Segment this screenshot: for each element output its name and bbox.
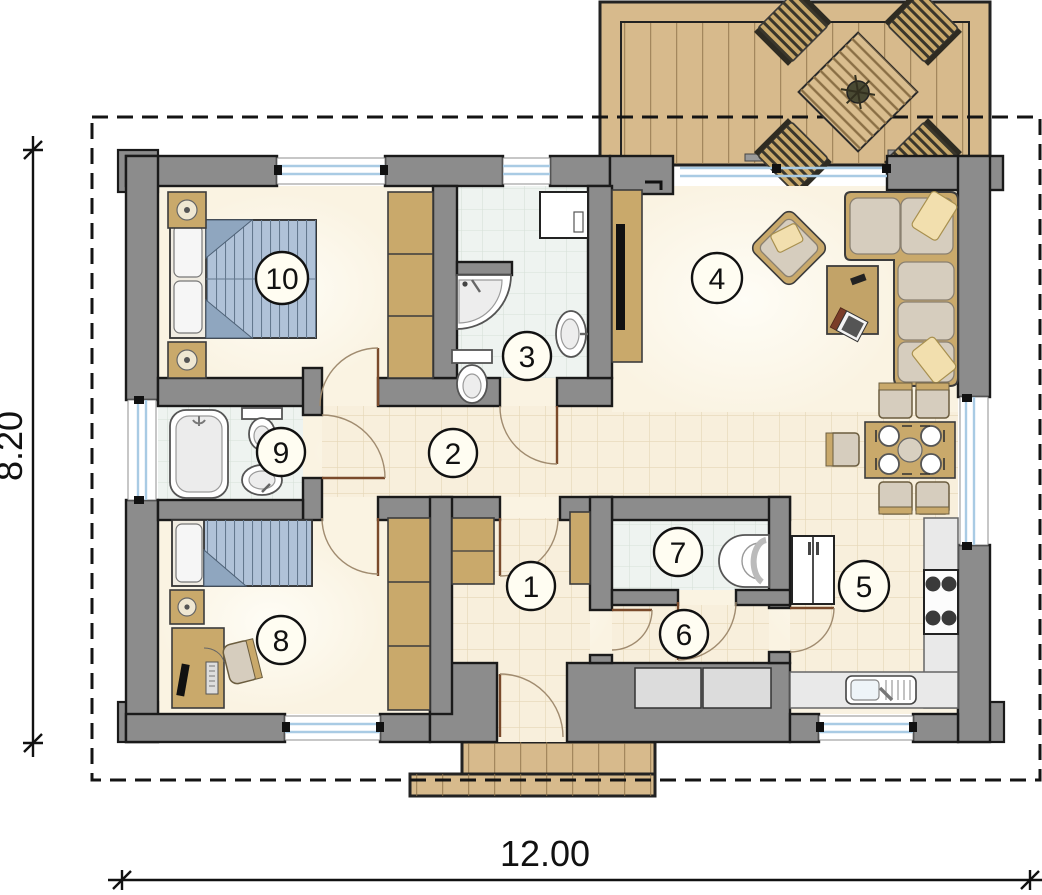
svg-text:3: 3 bbox=[519, 341, 536, 374]
hall-wardrobe bbox=[452, 518, 494, 584]
dining-chair bbox=[916, 482, 949, 514]
desk bbox=[172, 628, 224, 708]
coffee-table bbox=[827, 266, 878, 342]
window-bathroom3 bbox=[503, 158, 550, 184]
height-dimension-label: 8.20 bbox=[0, 411, 30, 481]
fridge bbox=[792, 536, 834, 604]
room-label-7: 7 bbox=[654, 528, 702, 576]
dining-chair bbox=[916, 383, 949, 418]
window-bedroom8 bbox=[282, 716, 384, 740]
width-dimension-label: 12.00 bbox=[500, 833, 590, 874]
svg-text:5: 5 bbox=[856, 571, 873, 604]
wardrobe bbox=[388, 192, 433, 378]
window-dining bbox=[960, 394, 988, 550]
wardrobe bbox=[388, 518, 430, 710]
room-label-3: 3 bbox=[503, 332, 551, 380]
kitchen-sink bbox=[846, 676, 916, 704]
hall-wardrobe bbox=[570, 512, 590, 584]
floor-plan-page: 1 2 3 4 5 6 7 8 9 10 8.20 12.00 bbox=[0, 0, 1042, 895]
room-label-8: 8 bbox=[257, 616, 305, 664]
svg-text:9: 9 bbox=[273, 437, 290, 470]
washing-machine bbox=[540, 192, 588, 238]
nightstand bbox=[170, 590, 204, 624]
floor-plan-canvas: 1 2 3 4 5 6 7 8 9 10 8.20 12.00 bbox=[0, 0, 1042, 895]
svg-text:6: 6 bbox=[676, 619, 693, 652]
room-label-2: 2 bbox=[429, 429, 477, 477]
nightstand bbox=[168, 192, 206, 228]
window-bathroom9 bbox=[128, 396, 156, 504]
svg-text:7: 7 bbox=[670, 537, 687, 570]
svg-text:10: 10 bbox=[265, 263, 298, 296]
room-label-10: 10 bbox=[256, 252, 308, 304]
room-label-5: 5 bbox=[839, 561, 889, 611]
room-label-9: 9 bbox=[257, 428, 305, 476]
svg-text:4: 4 bbox=[709, 263, 726, 296]
bathtub bbox=[170, 410, 228, 498]
entry-porch bbox=[410, 742, 655, 796]
svg-text:8: 8 bbox=[273, 625, 290, 658]
entry-storage-units bbox=[635, 668, 771, 708]
dimension-height: 8.20 bbox=[0, 136, 43, 757]
window-kitchen bbox=[816, 716, 917, 740]
dining-chair bbox=[826, 433, 859, 466]
single-bed bbox=[172, 520, 312, 586]
stove bbox=[924, 570, 958, 634]
dining-chair bbox=[879, 482, 912, 514]
room-label-1: 1 bbox=[507, 562, 555, 610]
shower-toilet-unit bbox=[719, 535, 769, 587]
tv-cabinet bbox=[612, 190, 642, 362]
room-label-6: 6 bbox=[660, 610, 708, 658]
dining-chair bbox=[879, 383, 912, 418]
window-bedroom10 bbox=[274, 158, 388, 184]
svg-text:1: 1 bbox=[523, 571, 540, 604]
room-label-4: 4 bbox=[692, 253, 742, 303]
wc-7 bbox=[719, 535, 769, 587]
svg-text:2: 2 bbox=[445, 438, 462, 471]
dimension-width: 12.00 bbox=[108, 833, 1042, 890]
dining-table bbox=[865, 422, 955, 478]
nightstand bbox=[168, 342, 206, 378]
